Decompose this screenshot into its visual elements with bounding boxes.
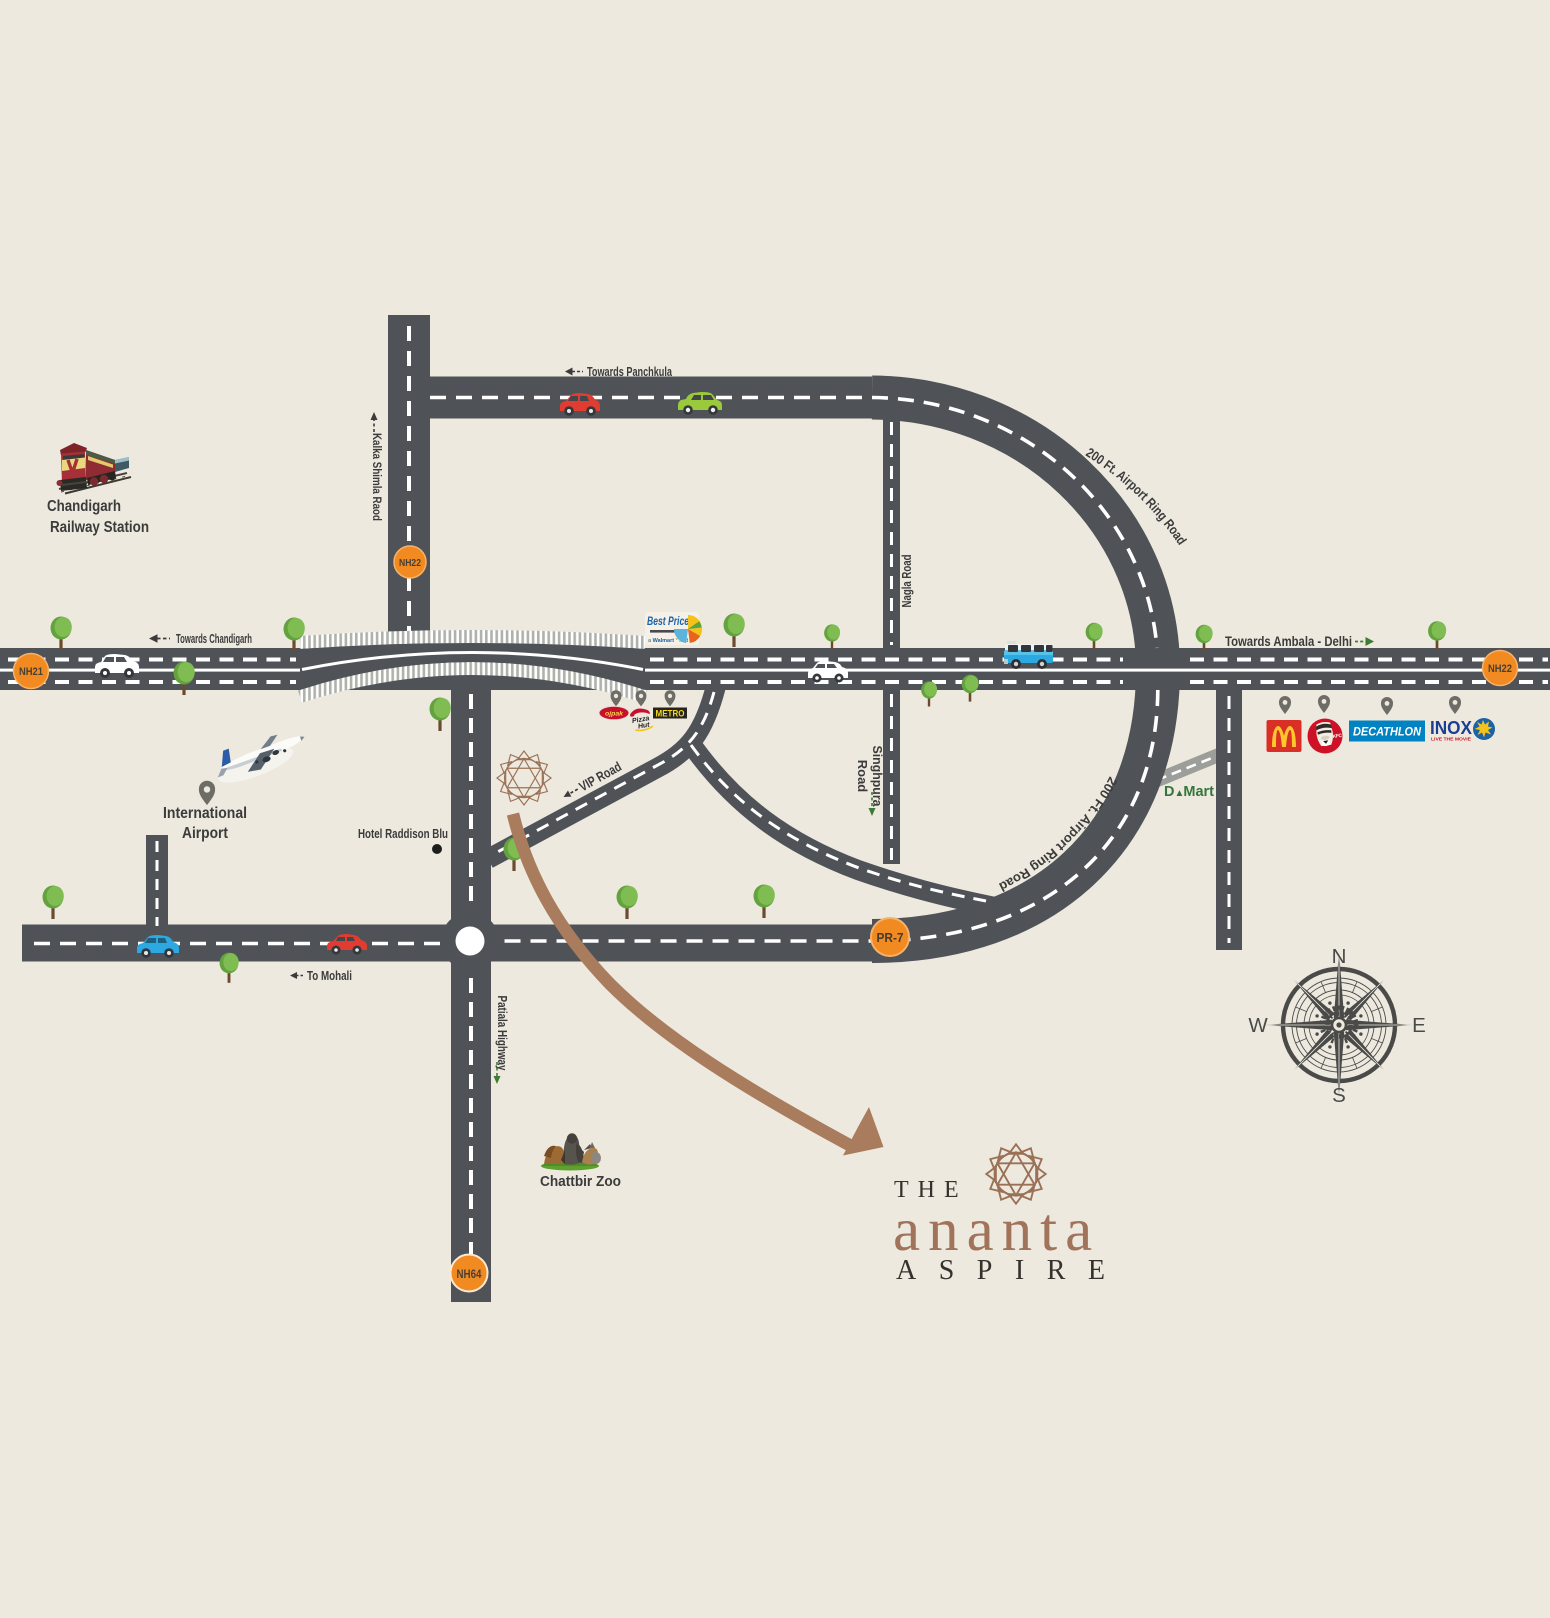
svg-text:N: N	[1332, 945, 1347, 968]
svg-text:NH21: NH21	[19, 666, 43, 678]
svg-text:Best Price: Best Price	[647, 616, 689, 628]
svg-text:DECATHLON: DECATHLON	[1353, 725, 1421, 739]
svg-text:Patiala Highway: Patiala Highway	[495, 996, 509, 1071]
svg-text:NH22: NH22	[399, 557, 421, 569]
svg-text:NH22: NH22	[1488, 663, 1512, 675]
svg-text:ananta: ananta	[893, 1197, 1100, 1264]
svg-text:To Mohali: To Mohali	[307, 969, 352, 983]
svg-text:Airport: Airport	[182, 825, 229, 842]
svg-text:ASPIRE: ASPIRE	[896, 1255, 1127, 1286]
svg-text:Chattbir Zoo: Chattbir Zoo	[540, 1174, 621, 1190]
svg-text:S: S	[1332, 1084, 1346, 1107]
svg-text:Hotel Raddison Blu: Hotel Raddison Blu	[358, 826, 448, 841]
svg-text:International: International	[163, 805, 247, 822]
svg-text:Towards Panchkula: Towards Panchkula	[587, 364, 673, 379]
svg-text:LIVE THE MOVIE: LIVE THE MOVIE	[1431, 737, 1472, 743]
svg-text:Nagla Road: Nagla Road	[900, 555, 914, 608]
svg-text:Kalka Shimla Raod: Kalka Shimla Raod	[370, 433, 382, 521]
svg-text:Towards Ambala - Delhi: Towards Ambala - Delhi	[1225, 634, 1352, 649]
svg-text:E: E	[1412, 1014, 1426, 1037]
svg-text:NH64: NH64	[457, 1269, 483, 1281]
svg-text:Railway Station: Railway Station	[50, 519, 149, 536]
svg-text:D▲Mart: D▲Mart	[1164, 784, 1214, 800]
svg-text:PR-7: PR-7	[877, 930, 904, 945]
svg-text:Road: Road	[855, 760, 870, 793]
svg-text:Chandigarh: Chandigarh	[47, 498, 121, 515]
svg-text:ojpak: ojpak	[605, 710, 623, 717]
svg-text:METRO: METRO	[656, 709, 685, 719]
svg-text:W: W	[1248, 1014, 1268, 1037]
svg-text:INOX: INOX	[1430, 718, 1472, 738]
svg-text:Towards Chandigarh: Towards Chandigarh	[176, 631, 252, 646]
